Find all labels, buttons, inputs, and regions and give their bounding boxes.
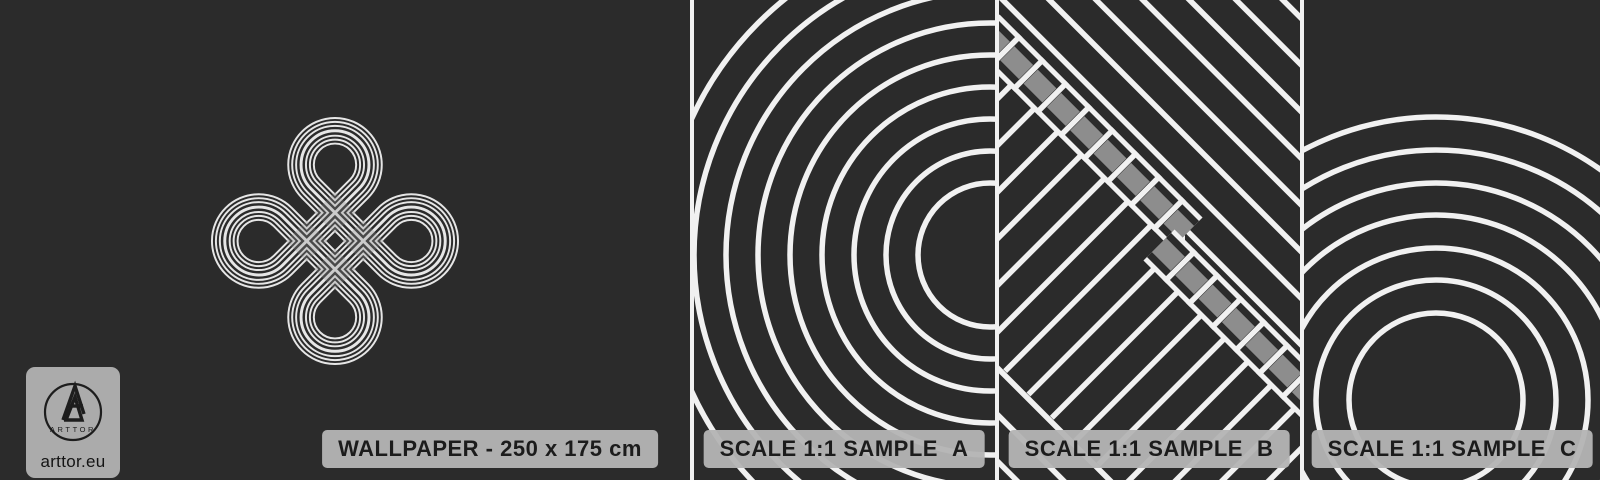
sample-b-diagonal-weave xyxy=(999,0,1300,480)
sample-c-label: SCALE 1:1 SAMPLEC xyxy=(1312,430,1593,468)
sample-a-letter: A xyxy=(952,436,968,461)
sample-b-label: SCALE 1:1 SAMPLEB xyxy=(1009,430,1290,468)
logo-site-text: arttor.eu xyxy=(40,452,105,472)
sample-b-label-text: SCALE 1:1 SAMPLE xyxy=(1025,436,1243,461)
sample-c-letter: C xyxy=(1560,436,1576,461)
sample-a-label: SCALE 1:1 SAMPLEA xyxy=(704,430,985,468)
arttor-logo-glyph-icon xyxy=(63,386,84,420)
sample-a-label-text: SCALE 1:1 SAMPLE xyxy=(720,436,938,461)
sample-c-label-text: SCALE 1:1 SAMPLE xyxy=(1328,436,1546,461)
logo-brand-text: ARTTOR xyxy=(50,425,96,434)
wallpaper-size-label: WALLPAPER - 250 x 175 cm xyxy=(322,430,658,468)
arttor-logo-icon: ARTTOR xyxy=(26,370,120,454)
knot-crossing-shading xyxy=(286,192,384,290)
sample-a-concentric-arcs xyxy=(694,0,995,480)
wallpaper-size-text: WALLPAPER - 250 x 175 cm xyxy=(338,436,642,461)
endless-knot-motif xyxy=(209,115,461,367)
brand-logo-badge: ARTTOR arttor.eu xyxy=(26,367,120,478)
sample-b-letter: B xyxy=(1257,436,1273,461)
sample-c-concentric-circles xyxy=(1304,0,1600,480)
wallpaper-product-mockup: WALLPAPER - 250 x 175 cm SCALE 1:1 SAMPL… xyxy=(0,0,1600,480)
